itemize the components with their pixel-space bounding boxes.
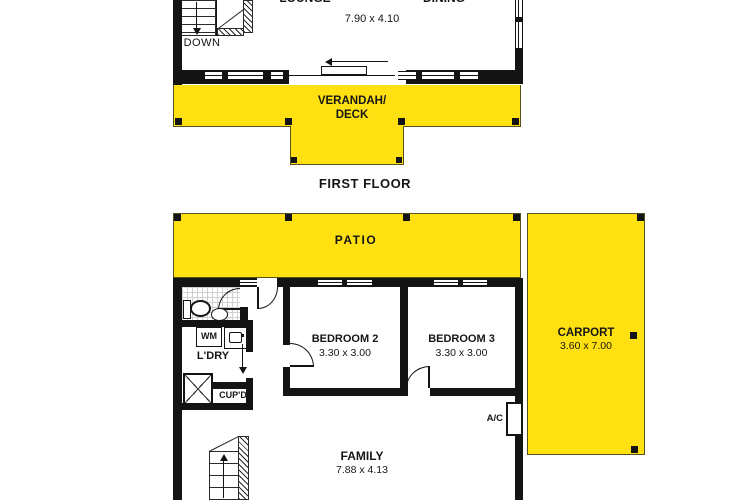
floor-plan-canvas: VERANDAH/ DECK DOWN LOUNGE: [0, 0, 750, 500]
ac-label: A/C: [476, 413, 503, 425]
verandah-post: [291, 157, 297, 163]
verandah-post: [175, 118, 182, 125]
basin-icon: [211, 308, 228, 321]
bathroom-window: [240, 279, 258, 286]
outline-segment: [403, 127, 404, 165]
bedroom3-label-group: BEDROOM 3 3.30 x 3.00: [408, 333, 515, 360]
bathroom-bottom-wall: [182, 320, 253, 327]
bedroom3-bottom-wall: [430, 388, 523, 396]
patio-post: [513, 214, 520, 221]
window: [398, 71, 478, 80]
stairs-up-arrow: [223, 461, 224, 498]
sliding-door-track: [289, 75, 395, 76]
ground-floor-left-wall: [173, 278, 182, 500]
staircase-rail: [209, 436, 239, 452]
sliding-door-arrow: [332, 61, 388, 62]
carport-label-group: CARPORT 3.60 x 7.00: [527, 326, 645, 354]
bedroom3-door-leaf: [428, 366, 430, 388]
shower-icon: [183, 373, 213, 405]
window-mullion: [454, 70, 460, 81]
verandah-label: VERANDAH/ DECK: [290, 94, 414, 123]
verandah-label-line1: VERANDAH/: [290, 94, 414, 108]
window-mullion: [515, 17, 523, 22]
first-floor-right-wall: [515, 48, 523, 84]
first-floor-plan: VERANDAH/ DECK DOWN LOUNGE: [0, 0, 750, 200]
carport-post: [631, 446, 638, 453]
bedroom2-left-wall: [283, 287, 290, 345]
bedroom2-label-group: BEDROOM 2 3.30 x 3.00: [290, 333, 400, 360]
carport-dimension: 3.60 x 7.00: [527, 340, 645, 353]
outline-segment: [290, 164, 404, 165]
laundry-bottom-wall: [182, 403, 253, 410]
dining-label: DINING: [394, 0, 494, 6]
verandah-post: [396, 157, 402, 163]
bedroom2-door-leaf: [290, 365, 314, 367]
carport-post: [637, 214, 644, 221]
staircase-balustrade: [243, 0, 253, 33]
ground-floor-plan: PATIO CARPORT 3.60 x 7.00 WM: [0, 200, 750, 500]
sliding-door-panel: [321, 66, 367, 75]
family-dimension: 7.88 x 4.13: [297, 464, 427, 477]
outline-segment: [173, 85, 174, 127]
hall-direction-arrow-icon: [239, 367, 247, 374]
outline-segment: [520, 85, 521, 127]
bedroom3-door-swing: [406, 366, 430, 388]
hall-direction-arrow: [242, 344, 243, 368]
stairs-down-label: DOWN: [178, 37, 226, 51]
patio-post: [403, 214, 410, 221]
patio-post: [174, 214, 181, 221]
family-label-group: FAMILY 7.88 x 4.13: [297, 449, 427, 477]
outline-segment: [173, 126, 291, 127]
sliding-door-arrow-icon: [325, 58, 332, 66]
laundry-label: L'DRY: [182, 350, 244, 364]
patio-label: PATIO: [286, 233, 426, 248]
patio-post: [285, 214, 292, 221]
laundry-tub-tap: [241, 334, 244, 337]
washing-machine: WM: [196, 327, 222, 347]
staircase-balustrade: [217, 28, 244, 36]
bedroom2-bottom-wall: [283, 388, 408, 396]
window-mullion: [222, 70, 228, 81]
window-mullion: [458, 278, 463, 287]
window: [515, 0, 523, 50]
bedroom2-dimension: 3.30 x 3.00: [290, 347, 400, 360]
window-mullion: [263, 70, 271, 81]
toilet-bowl-icon: [190, 300, 211, 317]
entry-door-swing: [258, 287, 278, 309]
staircase-balustrade: [238, 436, 249, 500]
lounge-dining-dimension: 7.90 x 4.10: [312, 13, 432, 27]
carport-label: CARPORT: [527, 326, 645, 340]
laundry-right-wall: [246, 320, 253, 352]
first-floor-caption: FIRST FLOOR: [290, 176, 440, 192]
window-mullion: [416, 70, 422, 81]
window-mullion: [342, 278, 347, 287]
ac-unit: [506, 402, 523, 436]
family-label: FAMILY: [297, 449, 427, 464]
verandah-deck-extension: [290, 127, 404, 165]
entry-door-opening: [257, 278, 277, 287]
outline-segment: [403, 126, 521, 127]
bedroom3-dimension: 3.30 x 3.00: [408, 347, 515, 360]
lounge-label: LOUNGE: [255, 0, 355, 6]
stairs-down-arrow: [196, 2, 197, 29]
bathroom-right-wall: [240, 307, 248, 320]
stairs-up-arrow-icon: [220, 454, 228, 461]
verandah-post: [512, 118, 519, 125]
washing-machine-label: WM: [197, 328, 221, 345]
bedroom2-label: BEDROOM 2: [290, 333, 400, 347]
bedroom3-label: BEDROOM 3: [408, 333, 515, 347]
verandah-label-line2: DECK: [290, 108, 414, 122]
window: [205, 71, 283, 80]
stairs-down-arrow-icon: [193, 28, 201, 35]
